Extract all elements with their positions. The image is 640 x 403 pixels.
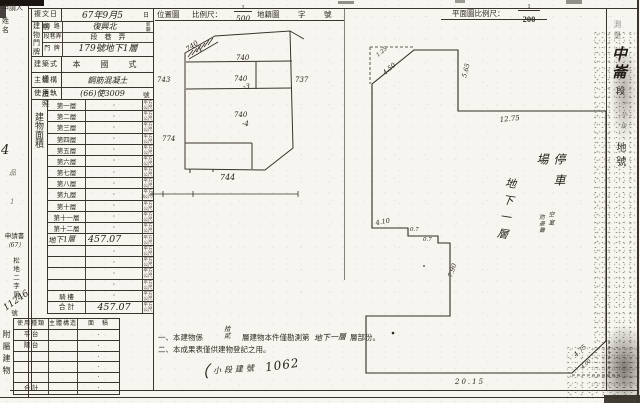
side-title-lot-number: 地號: [612, 142, 627, 174]
dim-step1: 0.7: [410, 227, 419, 233]
note-line-1: 一、本建物係 拾 貳 層建物本件僅勘測第 地下一層 層部份。: [158, 330, 598, 344]
dim-bottom-edge: 20.15: [454, 378, 485, 386]
note1-fill-storeys: 拾 貳: [224, 326, 231, 340]
hw-lot-number: 1062: [264, 356, 300, 375]
svg-text:-4: -4: [242, 120, 249, 128]
parking-lot-label: 停車場: [534, 153, 568, 215]
note1-handwritten-floor: 地下一層: [314, 331, 347, 344]
note1-post: 層部份。: [350, 332, 380, 343]
floor-plan-outline: [366, 47, 622, 377]
note-line-2: 二、本成果表僅供建物登記之用。: [158, 344, 271, 355]
parcel-774: 774: [162, 135, 175, 143]
parcel-744: 744: [220, 173, 235, 182]
scanned-survey-form: 申請人 姓 名 4 品 1 申請書 （67） 松地二字第 號 11246 附屬建…: [0, 0, 640, 403]
side-title-section: 段: [614, 86, 627, 98]
handwritten-lot-note: （ 小段建號 1062: [193, 358, 333, 382]
hw-lot-text: 小段建號: [213, 362, 258, 376]
dim-step2: 0.7: [423, 237, 432, 243]
parcel-labels: 740 -1 740 743 740 -3 737 740 -4 774 744…: [141, 39, 309, 200]
dim-chamfer-small: 1.25: [375, 46, 389, 59]
dim-top-edge: 12.75: [499, 114, 520, 124]
stray-ink-dot: [423, 265, 425, 267]
shelter-label-right: 空室: [546, 211, 555, 229]
note1-mid: 層建物本件僅勘測第: [242, 332, 310, 343]
dim-corner-small: 4.00: [580, 358, 594, 371]
note1-pre: 一、本建物係: [158, 332, 203, 343]
scale-bar-mark: 3·: [141, 194, 146, 200]
parcel-740-4: 740: [234, 111, 248, 119]
dim-corner: 4.75: [571, 343, 588, 359]
parcel-740-3: 740: [234, 75, 248, 83]
side-title-district: 中崙: [609, 46, 630, 86]
parcel-737: 737: [295, 76, 309, 84]
parcel-740: 740: [236, 54, 250, 62]
hw-paren: （: [193, 358, 209, 382]
dim-notch-top: 4.10: [374, 217, 391, 228]
dim-notch-right: 7.90: [446, 262, 458, 278]
shelter-label-left: 防避難: [537, 214, 545, 234]
parcel-743: 743: [157, 76, 171, 84]
side-title-faint: 測量: [612, 20, 623, 46]
svg-text:-3: -3: [243, 83, 250, 91]
dim-right-top: 5.65: [460, 62, 471, 78]
